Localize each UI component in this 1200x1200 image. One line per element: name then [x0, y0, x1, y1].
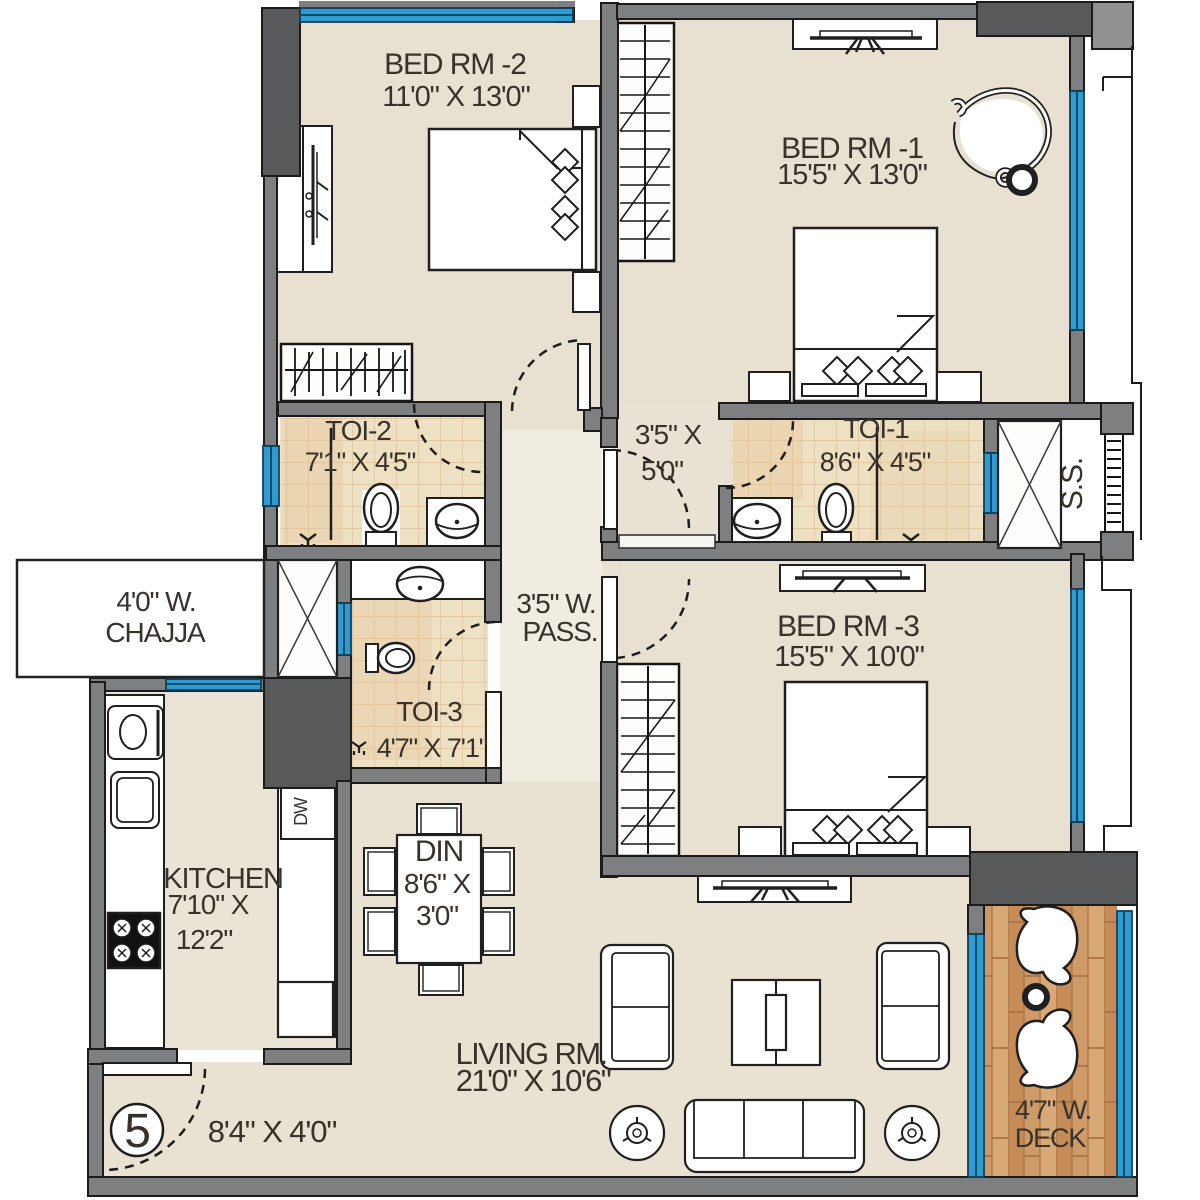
svg-text:BED RM -3: BED RM -3	[777, 610, 919, 643]
svg-text:11'0" X 13'0": 11'0" X 13'0"	[382, 81, 530, 113]
svg-text:3'5" W.: 3'5" W.	[516, 588, 595, 619]
svg-text:3'0": 3'0"	[416, 900, 458, 931]
svg-text:BED RM -2: BED RM -2	[384, 48, 526, 81]
svg-text:TOI-3: TOI-3	[396, 696, 462, 727]
svg-text:7'10" X: 7'10" X	[168, 889, 250, 920]
svg-text:8'6" X 4'5": 8'6" X 4'5"	[820, 447, 931, 477]
svg-text:S.S.: S.S.	[1056, 458, 1089, 510]
svg-text:8'4" X 4'0": 8'4" X 4'0"	[208, 1114, 337, 1149]
svg-text:8'6" X: 8'6" X	[404, 868, 472, 899]
svg-text:12'2": 12'2"	[176, 924, 233, 955]
svg-text:DECK: DECK	[1015, 1123, 1087, 1153]
svg-text:15'5" X 13'0": 15'5" X 13'0"	[777, 159, 927, 191]
svg-text:CHAJJA: CHAJJA	[105, 617, 206, 648]
svg-text:15'5" X 10'0": 15'5" X 10'0"	[774, 641, 924, 673]
svg-text:4'0" W.: 4'0" W.	[116, 586, 195, 617]
svg-text:5: 5	[124, 1105, 150, 1158]
svg-text:3'5" X: 3'5" X	[635, 419, 703, 450]
svg-text:DW: DW	[291, 797, 311, 826]
svg-text:TOI-2: TOI-2	[325, 415, 391, 446]
svg-text:21'0" X 10'6": 21'0" X 10'6"	[456, 1063, 611, 1098]
svg-text:5'0": 5'0"	[641, 455, 683, 486]
svg-text:TOI-1: TOI-1	[843, 413, 909, 444]
svg-text:PASS.: PASS.	[523, 616, 598, 647]
svg-text:4'7" W.: 4'7" W.	[1015, 1095, 1091, 1125]
svg-text:7'1" X 4'5": 7'1" X 4'5"	[305, 447, 416, 477]
svg-text:DIN: DIN	[415, 835, 463, 868]
svg-text:4'7" X 7'1": 4'7" X 7'1"	[377, 733, 488, 763]
